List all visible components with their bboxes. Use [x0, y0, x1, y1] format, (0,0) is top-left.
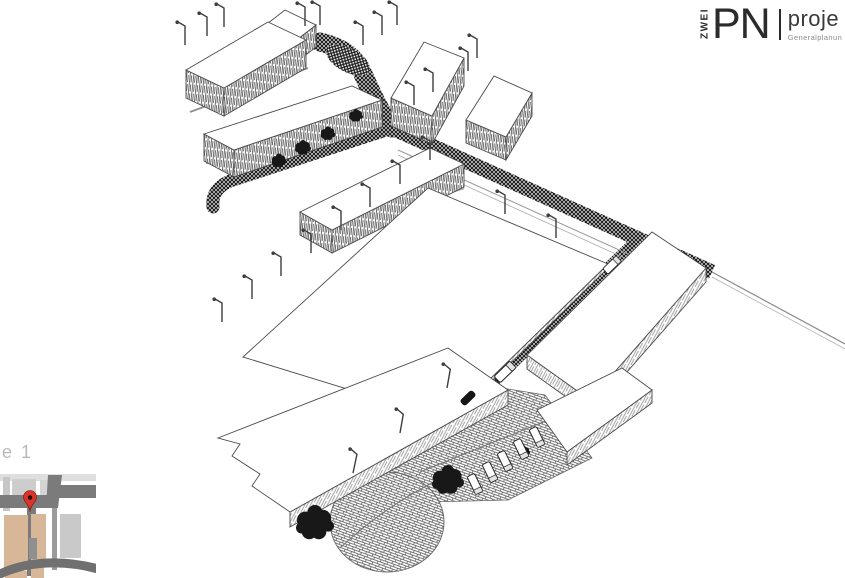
fence-line-right-2: [712, 277, 845, 356]
street-lamp: [387, 0, 397, 25]
logo-tagline-bottom: Generalplanun: [788, 33, 842, 42]
street-lamp: [271, 251, 281, 276]
street-lamp: [242, 274, 252, 299]
map-road-right: [56, 485, 96, 498]
map-building: [4, 515, 28, 569]
fence-line-right: [712, 272, 845, 352]
company-logo: ZWEI PN proje Generalplanun: [699, 5, 845, 45]
street-lamp: [197, 11, 207, 36]
page: ZWEI PN proje Generalplanun e 1: [0, 0, 845, 578]
street-lamp: [353, 20, 363, 45]
street-lamp: [467, 33, 477, 58]
sketch-canvas: [0, 0, 845, 578]
map-inset-label: e 1: [2, 442, 33, 463]
street-lamp: [310, 0, 320, 25]
building-top-left-long: [186, 22, 306, 116]
building-junction-right-2: [466, 76, 532, 160]
map-light-block-right: [60, 514, 81, 558]
building-junction-right-1: [391, 42, 464, 144]
street-lamp: [214, 2, 224, 27]
street-lamp: [546, 213, 556, 238]
logo-main-text: PN: [712, 5, 770, 43]
logo-tagline: proje Generalplanun: [788, 5, 842, 42]
logo-vertical-text: ZWEI: [699, 5, 712, 45]
street-lamp: [212, 297, 222, 322]
map-gray-block: [29, 538, 37, 559]
map-inset: [0, 461, 96, 578]
logo-divider: [779, 9, 781, 40]
street-lamp: [372, 10, 382, 35]
street-lamp: [175, 20, 185, 45]
logo-tagline-top: proje: [788, 8, 842, 30]
